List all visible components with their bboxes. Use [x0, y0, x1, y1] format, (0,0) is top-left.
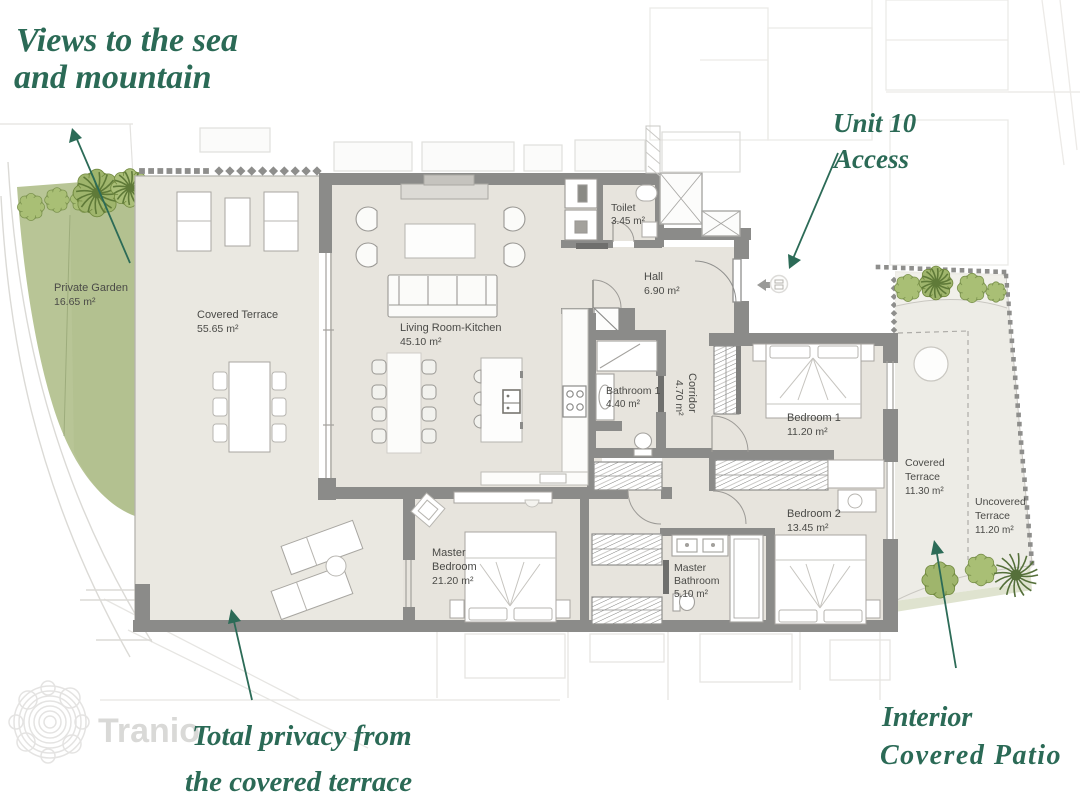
- svg-text:Terrace: Terrace: [975, 510, 1010, 522]
- svg-text:16.65 m²: 16.65 m²: [54, 296, 96, 308]
- svg-text:11.30 m²: 11.30 m²: [905, 486, 944, 497]
- svg-text:Tranio: Tranio: [98, 712, 200, 750]
- svg-text:Toilet: Toilet: [611, 202, 636, 214]
- svg-text:the covered terrace: the covered terrace: [185, 766, 412, 798]
- svg-text:Terrace: Terrace: [905, 471, 940, 483]
- svg-text:4.70 m²: 4.70 m²: [673, 380, 685, 416]
- svg-text:Bedroom: Bedroom: [432, 561, 477, 573]
- svg-text:Private Garden: Private Garden: [54, 282, 128, 294]
- svg-text:Bathroom: Bathroom: [674, 575, 720, 587]
- svg-text:Interior: Interior: [881, 702, 973, 733]
- svg-text:Bedroom 2: Bedroom 2: [787, 508, 841, 520]
- svg-text:Covered Terrace: Covered Terrace: [197, 309, 278, 321]
- svg-text:21.20 m²: 21.20 m²: [432, 575, 474, 587]
- svg-text:Hall: Hall: [644, 271, 663, 283]
- svg-text:5.10 m²: 5.10 m²: [674, 589, 709, 600]
- svg-text:6.90 m²: 6.90 m²: [644, 285, 680, 297]
- svg-text:Master: Master: [432, 547, 466, 559]
- svg-text:Corridor: Corridor: [686, 373, 698, 413]
- svg-text:Uncovered: Uncovered: [975, 496, 1026, 508]
- svg-text:13.45 m²: 13.45 m²: [787, 522, 829, 534]
- svg-text:Total privacy from: Total privacy from: [192, 720, 412, 752]
- svg-text:Bedroom 1: Bedroom 1: [787, 412, 841, 424]
- svg-text:Views to the sea: Views to the sea: [16, 22, 238, 59]
- svg-text:Covered: Covered: [905, 457, 945, 469]
- svg-text:Unit 10: Unit 10: [833, 108, 917, 138]
- svg-text:Covered Patio: Covered Patio: [880, 740, 1062, 771]
- svg-text:4.40 m²: 4.40 m²: [606, 399, 641, 410]
- svg-text:Access: Access: [832, 144, 909, 174]
- svg-text:and mountain: and mountain: [14, 59, 211, 96]
- svg-text:11.20 m²: 11.20 m²: [787, 426, 828, 438]
- svg-text:Master: Master: [674, 562, 707, 574]
- svg-text:11.20 m²: 11.20 m²: [975, 525, 1014, 536]
- svg-text:55.65 m²: 55.65 m²: [197, 323, 239, 335]
- svg-text:45.10 m²: 45.10 m²: [400, 336, 442, 348]
- svg-text:Bathroom 1: Bathroom 1: [606, 385, 660, 397]
- svg-text:3.45 m²: 3.45 m²: [611, 216, 646, 227]
- svg-text:Living Room-Kitchen: Living Room-Kitchen: [400, 322, 502, 334]
